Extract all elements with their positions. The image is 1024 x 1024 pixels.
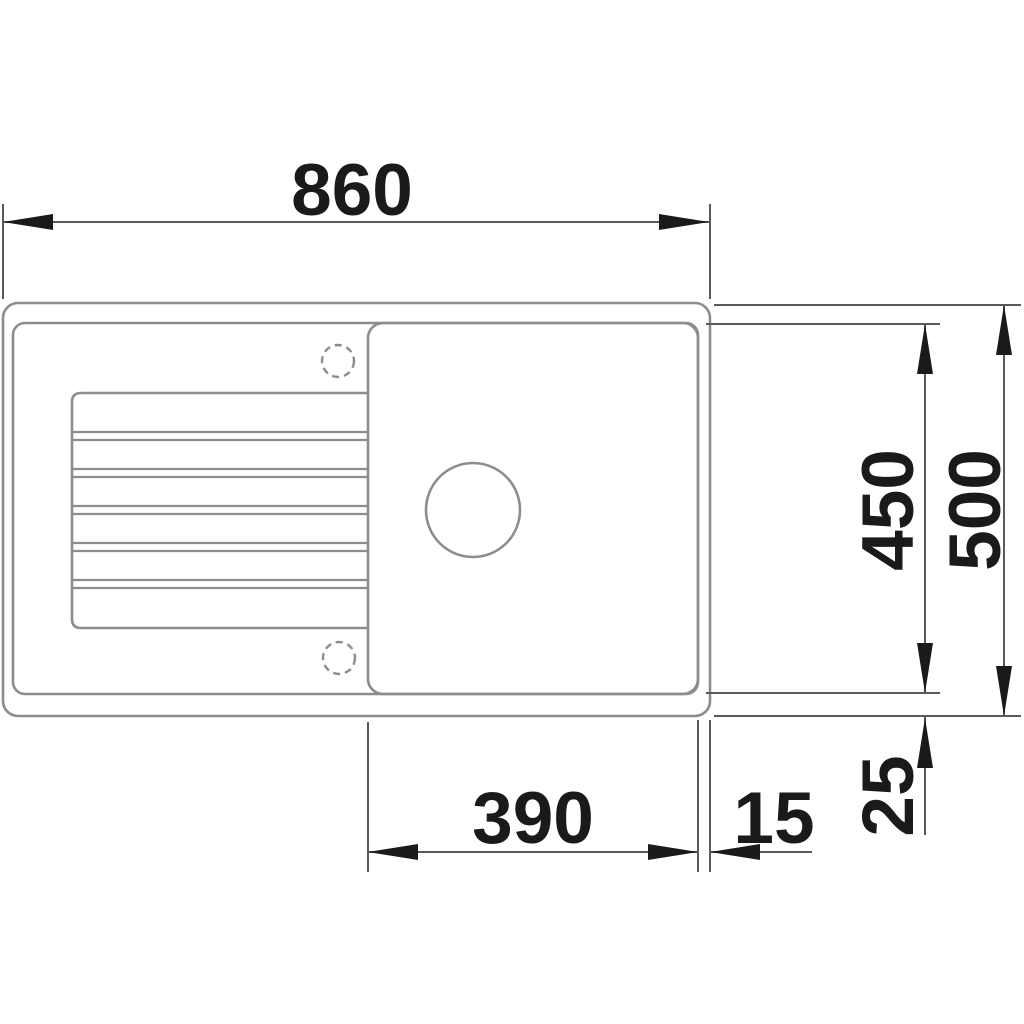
arrow-860-left	[3, 214, 53, 230]
arrow-450-bottom	[917, 643, 933, 693]
label-overall-width: 860	[291, 150, 413, 231]
sink-outer-edge	[3, 303, 710, 716]
arrow-390-left	[368, 844, 418, 860]
tap-hole-top	[322, 345, 354, 377]
arrow-860-right	[659, 214, 709, 230]
sink-body	[3, 303, 710, 716]
arrow-450-top	[917, 324, 933, 374]
sink-technical-drawing: 860 390 15 450 500 25	[0, 0, 1024, 1024]
drain-hole	[426, 463, 520, 557]
drawing-canvas: 860 390 15 450 500 25	[0, 0, 1024, 1024]
dimension-labels: 860 390 15 450 500 25	[291, 150, 1016, 859]
drainboard-outline	[72, 393, 368, 628]
sink-bowl	[368, 323, 698, 694]
label-bottom-rim-offset: 25	[848, 755, 929, 836]
drainboard-ribs	[72, 432, 368, 588]
tap-hole-bottom	[323, 642, 355, 674]
arrow-390-right	[648, 844, 698, 860]
arrow-500-top	[996, 305, 1012, 355]
sink-inner-rim	[13, 323, 698, 694]
label-inner-depth: 450	[848, 449, 929, 571]
label-bowl-width: 390	[472, 778, 594, 859]
label-overall-depth: 500	[935, 449, 1016, 571]
arrow-500-bottom	[996, 666, 1012, 716]
label-right-rim-offset: 15	[733, 778, 814, 859]
